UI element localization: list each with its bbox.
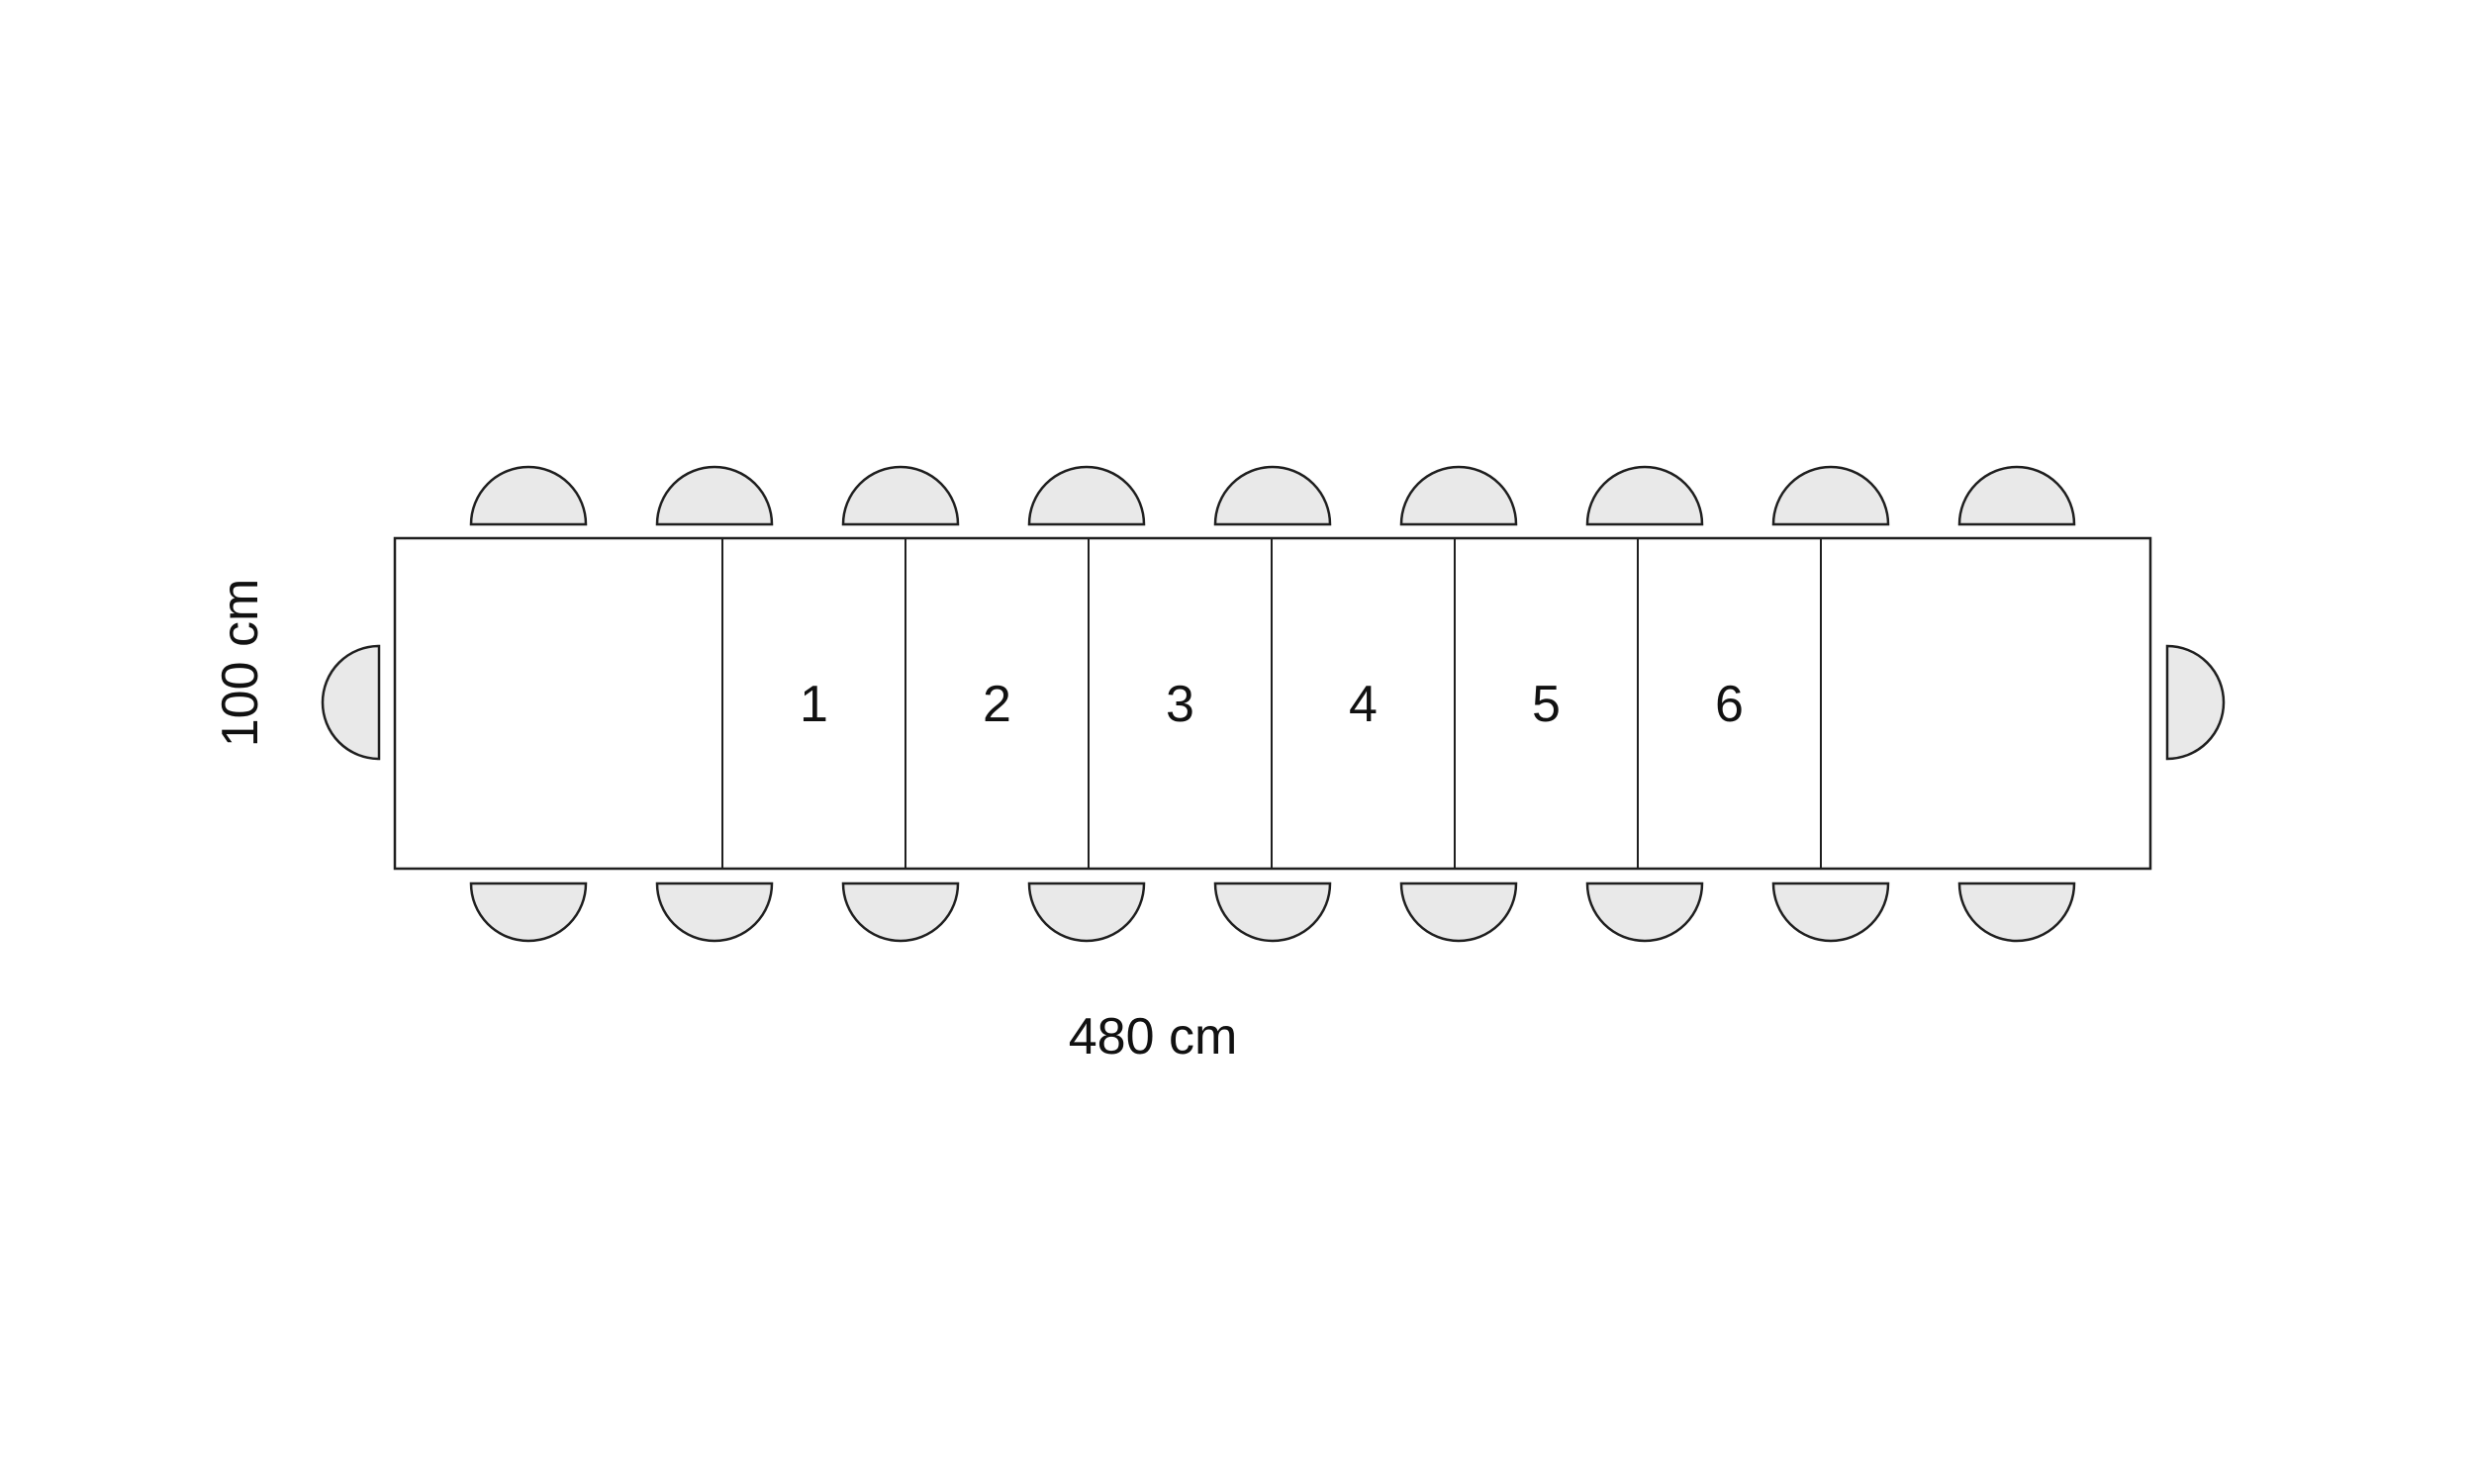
chair-left-end bbox=[323, 646, 379, 759]
chair-top-9 bbox=[1959, 467, 2074, 524]
chair-top-1 bbox=[471, 467, 586, 524]
section-number-5: 5 bbox=[1532, 676, 1561, 733]
floor-plan-canvas: 123456 100 cm 480 cm bbox=[0, 0, 2474, 1484]
chair-top-6 bbox=[1401, 467, 1516, 524]
chair-top-5 bbox=[1215, 467, 1330, 524]
chair-top-7 bbox=[1587, 467, 1702, 524]
chair-bottom-5 bbox=[1215, 883, 1330, 941]
chair-bottom-3 bbox=[843, 883, 958, 941]
table-width-label: 480 cm bbox=[1069, 1008, 1238, 1066]
chair-bottom-9 bbox=[1959, 883, 2074, 941]
chair-bottom-6 bbox=[1401, 883, 1516, 941]
section-number-3: 3 bbox=[1166, 676, 1194, 733]
section-number-6: 6 bbox=[1715, 676, 1744, 733]
chair-bottom-1 bbox=[471, 883, 586, 941]
section-number-2: 2 bbox=[983, 676, 1011, 733]
chair-bottom-8 bbox=[1773, 883, 1888, 941]
chair-top-4 bbox=[1029, 467, 1144, 524]
section-number-4: 4 bbox=[1349, 676, 1378, 733]
chair-top-8 bbox=[1773, 467, 1888, 524]
table-height-label: 100 cm bbox=[212, 579, 269, 748]
section-number-1: 1 bbox=[800, 676, 828, 733]
chair-bottom-4 bbox=[1029, 883, 1144, 941]
chair-bottom-7 bbox=[1587, 883, 1702, 941]
chair-bottom-2 bbox=[657, 883, 772, 941]
table-seating-diagram: 123456 100 cm 480 cm bbox=[0, 0, 2474, 1484]
chair-right-end bbox=[2167, 646, 2224, 759]
chair-top-3 bbox=[843, 467, 958, 524]
chair-top-2 bbox=[657, 467, 772, 524]
